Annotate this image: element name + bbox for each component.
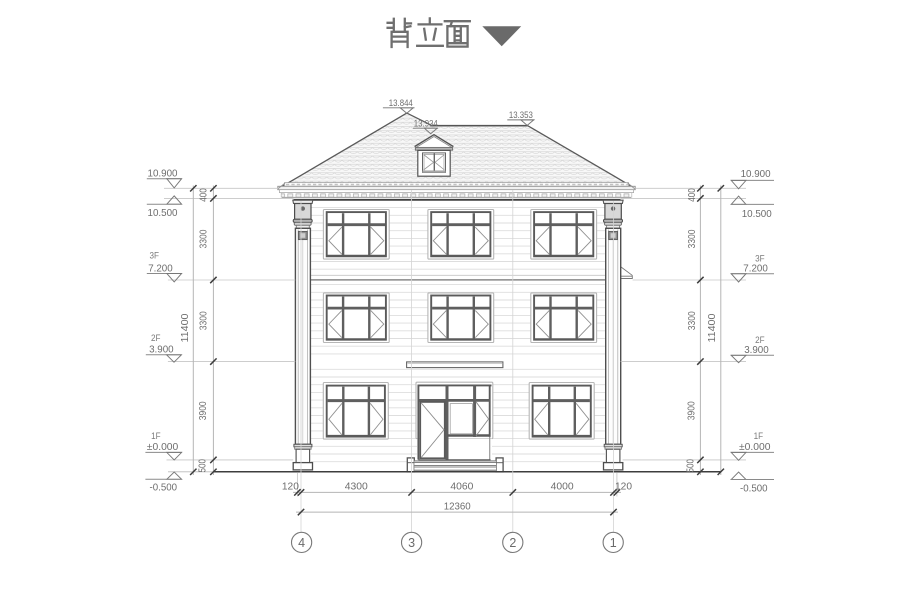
svg-text:1: 1 (610, 536, 617, 550)
svg-text:400: 400 (687, 188, 698, 202)
svg-text:3300: 3300 (687, 229, 698, 248)
svg-text:7.200: 7.200 (148, 262, 173, 274)
svg-text:3300: 3300 (199, 229, 210, 248)
svg-text:3900: 3900 (198, 401, 209, 420)
svg-text:4300: 4300 (345, 482, 368, 493)
svg-text:3.900: 3.900 (149, 343, 174, 355)
svg-text:2F: 2F (151, 333, 161, 343)
svg-text:3F: 3F (150, 251, 160, 261)
svg-text:11400: 11400 (180, 313, 191, 342)
svg-text:7.200: 7.200 (743, 262, 768, 274)
svg-text:10.900: 10.900 (148, 167, 178, 179)
svg-text:3: 3 (408, 536, 415, 550)
svg-text:4000: 4000 (551, 482, 574, 493)
svg-text:-0.500: -0.500 (740, 482, 768, 494)
svg-text:±0.000: ±0.000 (147, 441, 179, 453)
svg-text:120: 120 (615, 482, 632, 493)
svg-text:3300: 3300 (687, 311, 698, 330)
svg-text:1F: 1F (754, 431, 764, 441)
svg-text:-0.500: -0.500 (150, 482, 178, 494)
svg-text:500: 500 (197, 459, 208, 473)
svg-text:3.900: 3.900 (744, 344, 769, 356)
svg-text:10.500: 10.500 (148, 207, 178, 219)
svg-text:3300: 3300 (199, 311, 210, 330)
svg-text:500: 500 (686, 459, 697, 473)
svg-text:2: 2 (509, 536, 516, 550)
svg-text:12360: 12360 (444, 502, 471, 513)
svg-text:120: 120 (282, 482, 299, 493)
svg-text:±0.000: ±0.000 (739, 441, 771, 453)
svg-text:4060: 4060 (450, 482, 473, 493)
svg-text:400: 400 (199, 188, 210, 202)
svg-text:4: 4 (298, 536, 305, 550)
svg-text:10.900: 10.900 (741, 168, 771, 180)
svg-text:1F: 1F (151, 431, 161, 441)
svg-text:10.500: 10.500 (742, 208, 772, 220)
svg-text:11400: 11400 (707, 313, 718, 342)
svg-text:3900: 3900 (686, 401, 697, 420)
